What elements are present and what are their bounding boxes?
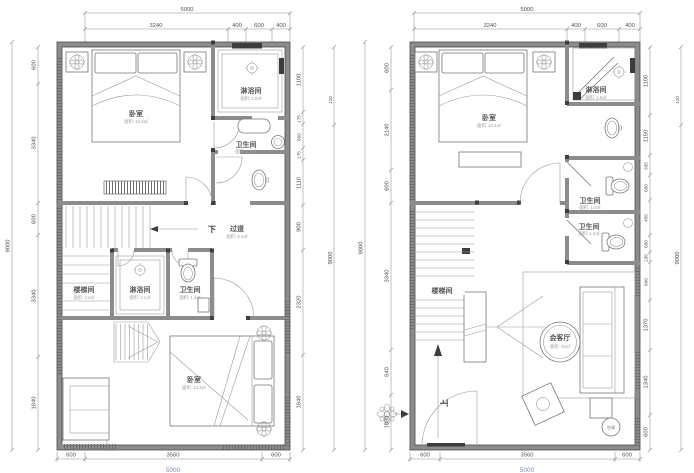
dim-label: 600 [297, 133, 302, 141]
dim-label: 3560 [167, 453, 180, 459]
dim-label: 400 [276, 23, 286, 29]
dim-label: 600 [644, 184, 649, 192]
round-table [540, 322, 580, 362]
room-name-shower: 淋浴间 [586, 85, 607, 94]
radiator [104, 181, 166, 194]
dim-label: 600 [597, 23, 607, 29]
dim-label: 400 [232, 23, 242, 29]
room-name-toilet-a: 卫生间 [580, 196, 601, 205]
dim-label: 2320 [297, 296, 303, 309]
room-name-shower-mid: 淋浴间 [130, 285, 151, 294]
dim-label: 3240 [484, 23, 497, 29]
dim-label: 5000 [181, 7, 194, 13]
dim-label: 600 [644, 240, 649, 248]
doormat [427, 443, 465, 447]
dim-label: 600 [644, 278, 649, 286]
room-name-bedroom-bottom: 卧室 [187, 375, 201, 384]
dim-label: 600 [271, 453, 281, 459]
dim-label: 600 [32, 214, 38, 224]
dim-label: 5000 [521, 7, 534, 13]
direction-label-down: 下 [208, 225, 216, 234]
desk [459, 152, 521, 167]
room-area: 面积: 19㎡ [550, 343, 571, 350]
dim-label: 600 [385, 63, 391, 73]
dim-label: 840 [385, 367, 391, 377]
entry-arrow-icon [401, 410, 409, 418]
dim-label: 3340 [32, 137, 38, 150]
room-area: 面积: 2.1㎡ [129, 294, 151, 301]
room-area: 面积: 16.3㎡ [124, 118, 148, 125]
dim-label: 600 [385, 181, 391, 191]
side-table [590, 398, 612, 418]
dim-label: 3240 [150, 23, 163, 29]
room-area: 面积: 3.4㎡ [73, 294, 95, 301]
dim-label: 600 [644, 427, 650, 437]
room-name-toilet-top: 卫生间 [236, 140, 257, 149]
dim-label: 600 [32, 60, 38, 70]
dim-label: 600 [66, 453, 76, 459]
beam [579, 43, 607, 49]
dim-label: 9000 [328, 252, 334, 265]
room-name-living: 会客厅 [550, 333, 571, 342]
dim-label: 175 [297, 115, 302, 123]
floor-plans-canvas: 5000 3240 400 600 400 9000 600 3340 600 … [0, 0, 694, 473]
dim-label: 3340 [385, 270, 391, 283]
room-name-shower-top: 淋浴间 [241, 86, 262, 95]
room-area: 面积: 1.5㎡ [585, 94, 607, 101]
room-area: 面积: 1.4㎡ [235, 148, 257, 155]
sofa [580, 287, 624, 393]
dim-label: 9000 [6, 240, 12, 253]
room-name-corridor: 过道 [230, 224, 244, 233]
dim-label: 1080 [385, 416, 391, 429]
dim-label: 600 [254, 23, 264, 29]
room-area: 面积: 1.4㎡ [179, 294, 201, 301]
dim-label: 1340 [644, 376, 650, 389]
room-area: 面积: 14.3㎡ [182, 384, 206, 391]
floor-plan-right: 空调 5000 3240 400 600 400 9000 600 2140 [359, 7, 684, 473]
direction-label-up: 上 [439, 399, 449, 407]
dim-label: 120 [675, 96, 680, 104]
dim-label: 1100 [644, 75, 650, 87]
dim-label: 1100 [297, 74, 303, 86]
dim-label: 1150 [644, 130, 650, 142]
bed-bottom [170, 326, 274, 437]
dim-label: 335 [644, 162, 649, 170]
dim-label: 400 [625, 23, 635, 29]
dim-label: 1370 [644, 319, 650, 332]
room-name-bedroom: 卧室 [482, 113, 496, 122]
room-name-bedroom-top: 卧室 [129, 109, 143, 118]
room-name-toilet-b: 卫生间 [579, 222, 600, 231]
floor-plan-left: 5000 3240 400 600 400 9000 600 3340 600 … [6, 7, 337, 473]
beam [232, 43, 262, 49]
ac-label: 空调 [607, 424, 615, 430]
dim-label: 120 [328, 96, 333, 104]
dim-label: 1840 [32, 397, 38, 410]
room-area: 面积: 12.4㎡ [477, 122, 501, 129]
room-area: 面积: 1.5㎡ [240, 95, 262, 102]
room-name-toilet-mid: 卫生间 [180, 285, 201, 294]
room-name-stair: 楼梯间 [74, 285, 95, 294]
room-area: 面积: 5.4㎡ [226, 233, 248, 240]
dim-label: 600 [622, 453, 632, 459]
dim-label: 3560 [521, 453, 534, 459]
dim-label: 600 [420, 453, 430, 459]
dim-label: 235 [644, 254, 649, 262]
dim-label-total: 5000 [166, 467, 181, 473]
room-name-stair: 楼梯间 [432, 286, 453, 295]
dim-label: 900 [297, 222, 303, 232]
doormat [64, 444, 118, 449]
dim-label: 1840 [297, 396, 303, 409]
room-area: 面积: 1.3㎡ [578, 230, 600, 237]
dim-label: 9000 [675, 252, 681, 265]
dim-label: 2140 [385, 124, 391, 137]
dim-label: 175 [297, 151, 302, 159]
dim-label: 400 [571, 23, 581, 29]
dim-label: 1110 [297, 177, 303, 189]
dim-label: 9000 [359, 242, 365, 255]
dim-label-total: 5000 [520, 467, 535, 473]
dim-label: 455 [644, 214, 649, 222]
dim-label: 3340 [32, 290, 38, 303]
room-area: 面积: 1.4㎡ [579, 204, 601, 211]
floor-plan-document: 5000 3240 400 600 400 9000 600 3340 600 … [0, 0, 694, 473]
entry-plant [377, 404, 409, 424]
